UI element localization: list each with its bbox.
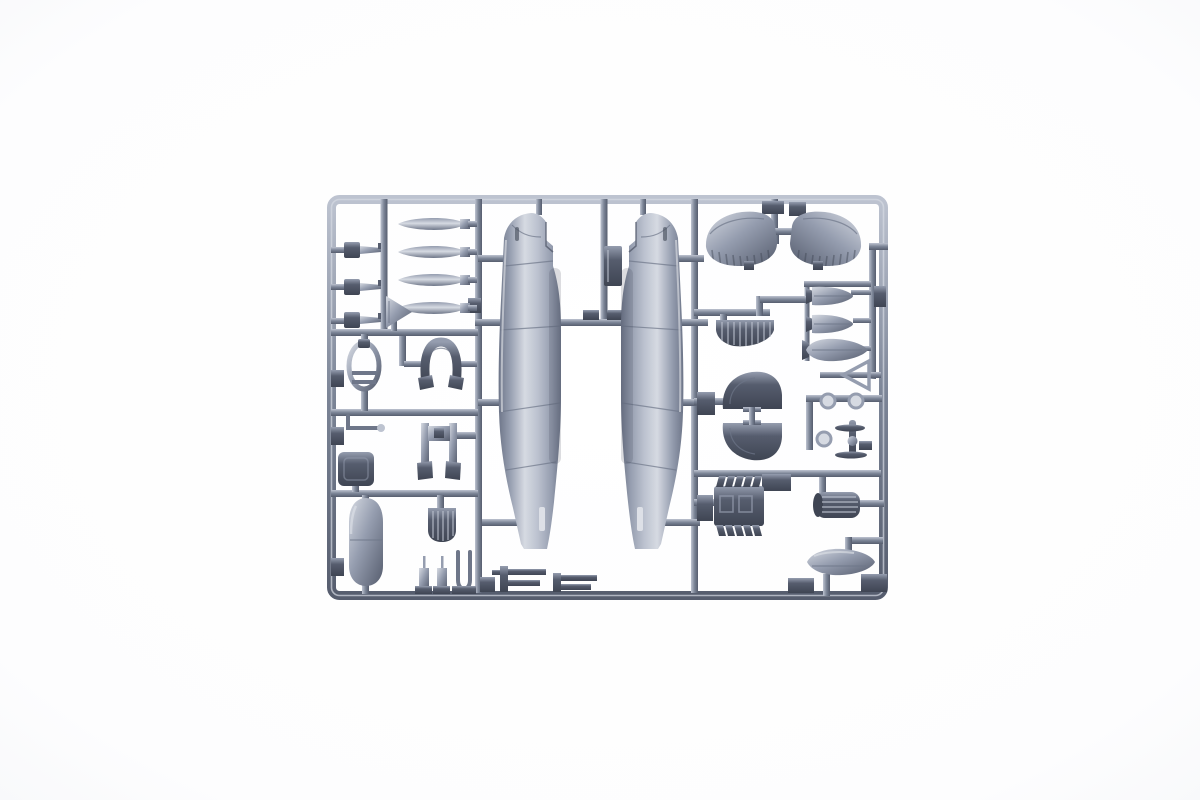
oil-cooler-fairing bbox=[349, 498, 383, 586]
engine-block-part bbox=[714, 476, 764, 536]
exhaust-manifold-part bbox=[813, 492, 860, 518]
sprue-photo bbox=[0, 0, 1200, 800]
photo-background bbox=[0, 0, 1200, 800]
equipment-box-part bbox=[604, 246, 622, 286]
radiator-core-part bbox=[428, 508, 456, 542]
pilot-seat bbox=[338, 452, 374, 486]
product-photo bbox=[0, 0, 1200, 800]
